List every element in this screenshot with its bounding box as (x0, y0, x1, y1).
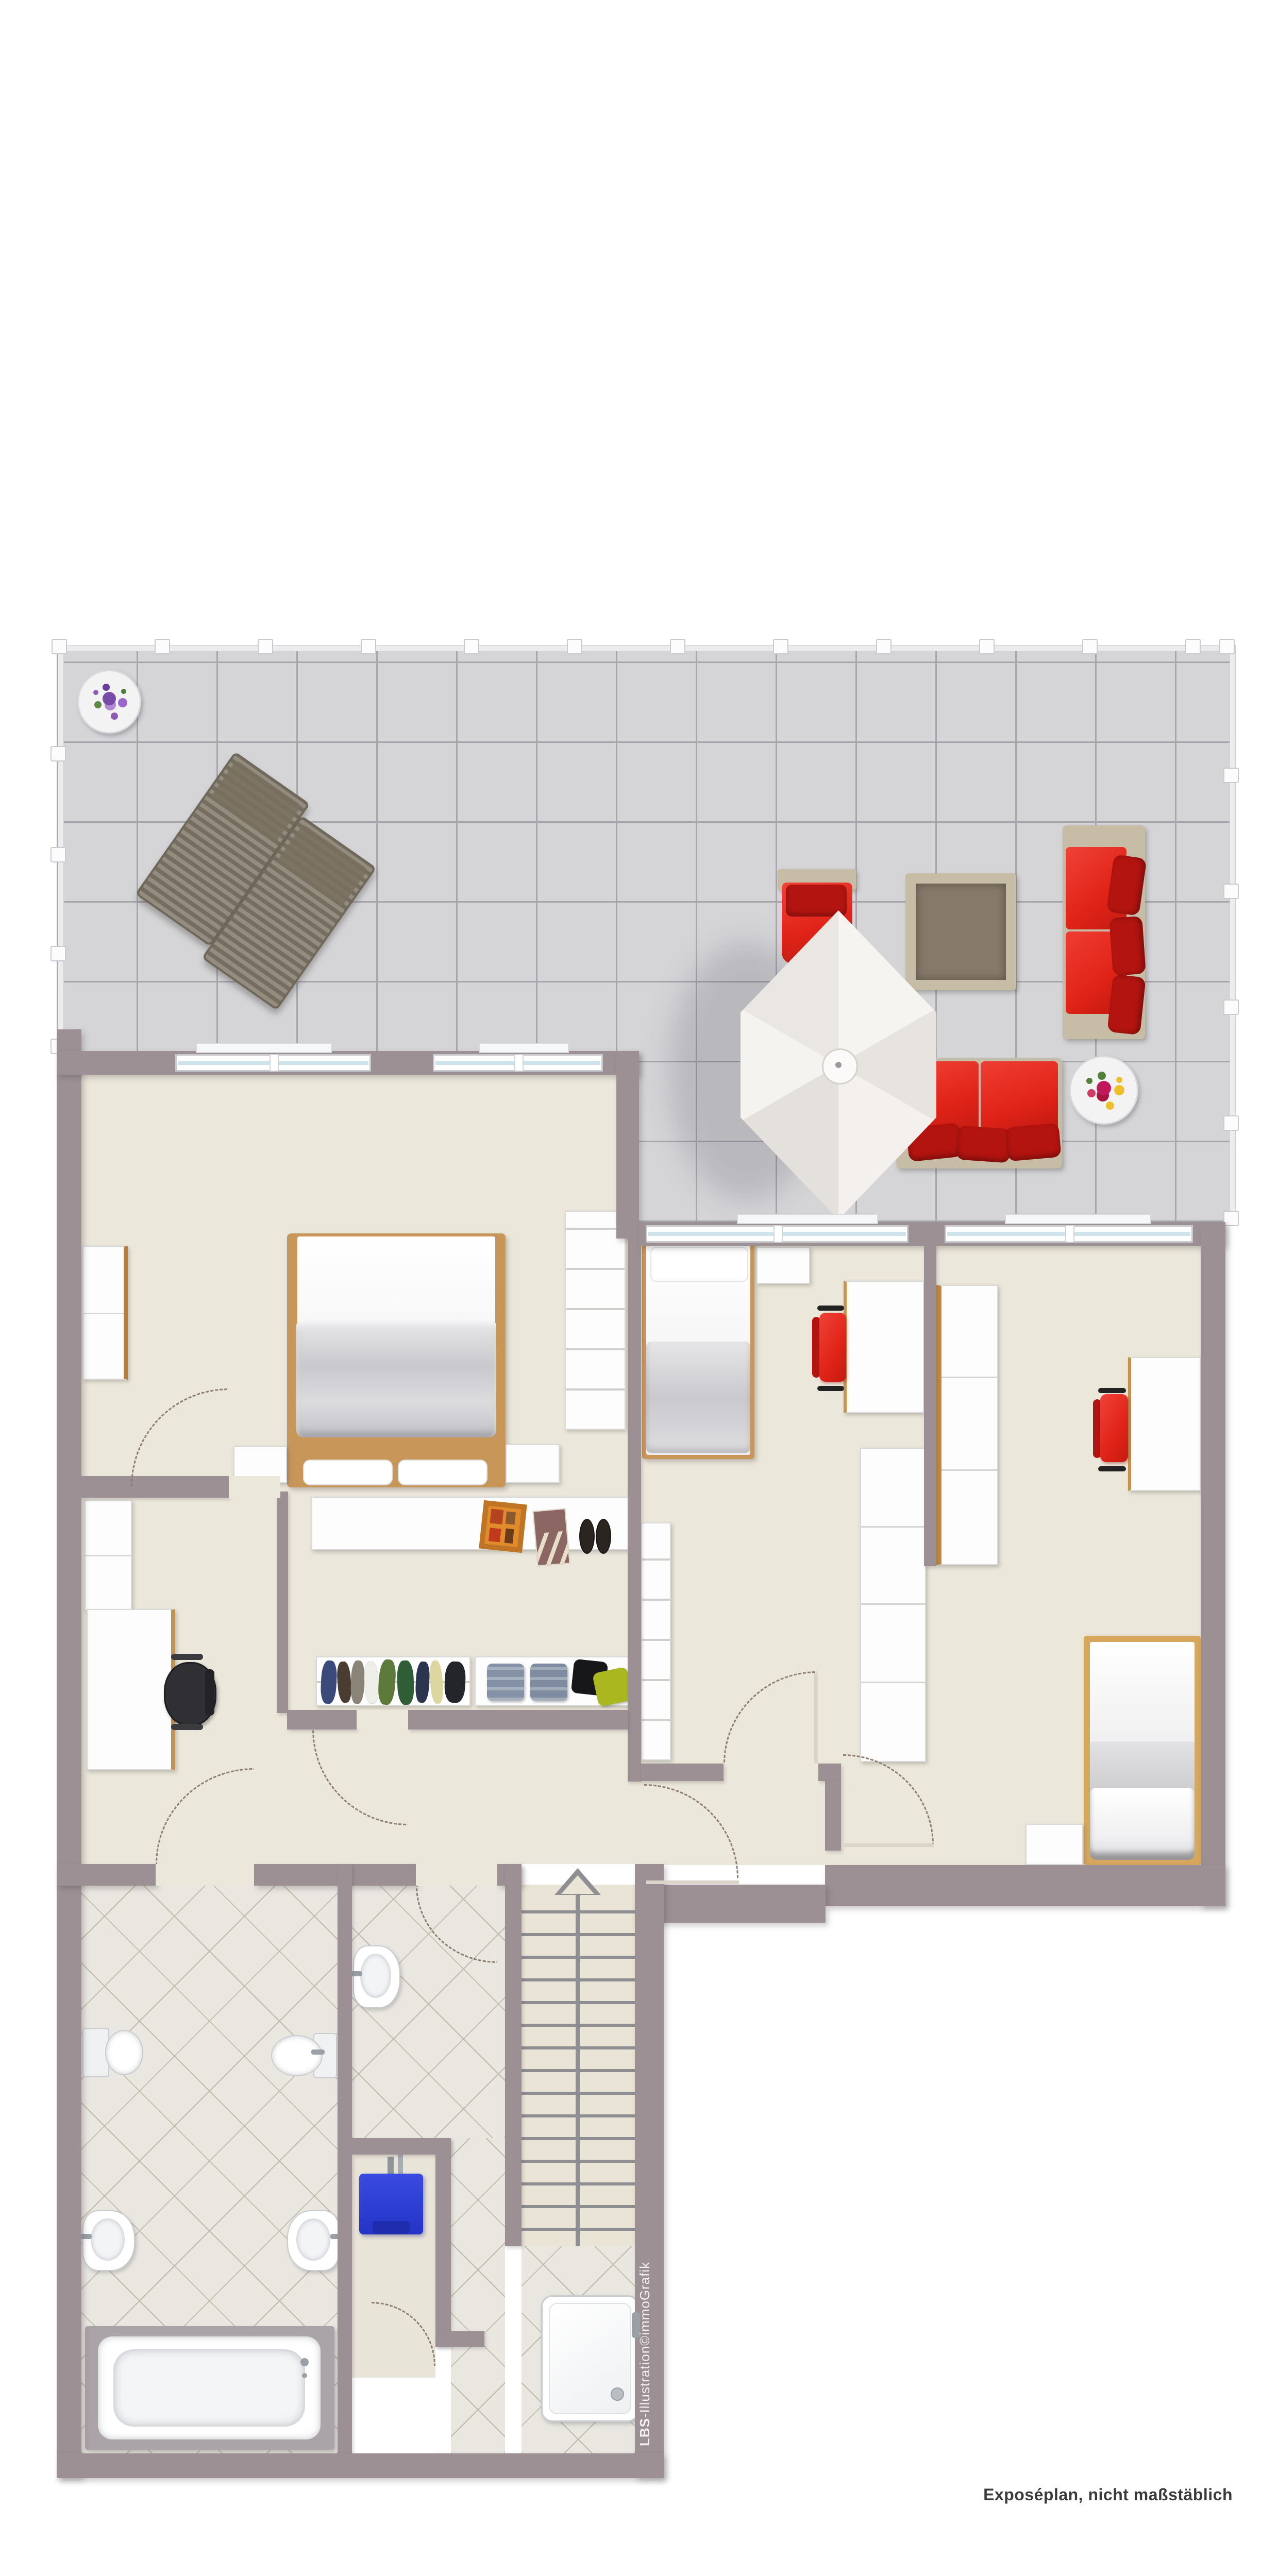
chair-armrest (817, 1386, 844, 1391)
wall-south-right (825, 1865, 1225, 1906)
wall-bath-north-a (57, 1864, 156, 1886)
door-opening-bathroom (156, 1864, 254, 1886)
sofa-back-pillow (1107, 974, 1146, 1035)
railing-post (51, 946, 66, 961)
clothes-shelf (475, 1656, 631, 1706)
wall-dressing-east (628, 1236, 641, 1782)
chair-backrest (205, 1669, 214, 1716)
railing-post (1185, 639, 1201, 654)
deco-square (506, 1512, 516, 1525)
chair-armrest (171, 1724, 203, 1730)
bookshelf (641, 1522, 671, 1760)
railing-post (1223, 1115, 1239, 1131)
wardrobe (936, 1285, 998, 1565)
desk-chair-red (1093, 1388, 1128, 1471)
single-bed (642, 1239, 754, 1459)
wall-shelf (756, 1247, 810, 1284)
window-sill (1005, 1214, 1151, 1224)
door-leaf (814, 1673, 818, 1764)
railing-post (876, 639, 892, 654)
wall-laundry-niche-stub (435, 2331, 484, 2347)
garden-sofa-3seat (1063, 825, 1145, 1039)
exterior-door-opening (357, 2378, 435, 2453)
deco-shoe (579, 1519, 595, 1554)
nightstand (1025, 1824, 1083, 1865)
railing-post (979, 639, 995, 654)
flower-pot (1069, 1056, 1138, 1125)
basin-faucet (351, 1971, 362, 1976)
basin-bowl (296, 2218, 330, 2261)
wall-exterior-right (1201, 1222, 1225, 1906)
railing-post (1219, 639, 1235, 654)
shower-tray (541, 2295, 639, 2422)
hanging-clothes (363, 1661, 380, 1704)
door-opening-bedroom (229, 1476, 280, 1498)
tall-wardrobe (565, 1211, 626, 1430)
railing-post (1223, 1211, 1239, 1226)
cabinet-seam (861, 1682, 925, 1683)
toilet (82, 2028, 141, 2075)
parasol-pole (835, 1062, 842, 1068)
railing-post (258, 639, 273, 654)
chair-armrest (1098, 1388, 1126, 1393)
deco-shoe (596, 1519, 611, 1554)
deco-square (490, 1509, 504, 1524)
wall-bedroom-east (616, 1051, 639, 1239)
railing-post (1223, 768, 1239, 783)
washbasin (287, 2210, 340, 2271)
wc-corridor-floor (451, 2138, 505, 2453)
deco-square (489, 1528, 501, 1542)
bed-pillow (398, 1460, 487, 1485)
flower-blossoms (103, 692, 116, 705)
flower-pot (77, 670, 141, 734)
desk (1128, 1357, 1201, 1491)
hanging-clothes (415, 1661, 430, 1703)
washbasin (82, 2210, 135, 2271)
wall-bedroom-south (81, 1476, 229, 1498)
wardrobe-seam (83, 1313, 124, 1314)
machine-front (373, 2221, 410, 2234)
railing-post (670, 639, 685, 654)
chair-armrest (171, 1654, 203, 1660)
railing-post (361, 639, 376, 654)
wall-laundry-niche-right (435, 2138, 451, 2347)
wall-exterior-south (57, 2453, 664, 2478)
stair-direction-arrow-inner (561, 1875, 594, 1894)
bed-pillow (303, 1460, 393, 1485)
hanging-clothes (429, 1660, 444, 1704)
clothes-rail (316, 1656, 470, 1706)
window (433, 1054, 603, 1072)
cabinet-seam (861, 1526, 925, 1528)
railing-post (773, 639, 788, 654)
sofa-seat (981, 1061, 1058, 1133)
shower-drain (611, 2387, 624, 2401)
watermark-lbs: LBS (637, 2418, 652, 2446)
wall-dressing-south-b (408, 1710, 628, 1730)
bidet-bowl (271, 2035, 323, 2076)
door-leaf (646, 1880, 739, 1884)
window-sill (479, 1043, 569, 1053)
window (646, 1225, 909, 1243)
bed-duvet (296, 1319, 496, 1437)
window-sill (737, 1214, 878, 1224)
watermark-rest: -Illustration©immoGrafik (637, 2262, 652, 2418)
toilet-bowl (105, 2030, 143, 2075)
railing-post (52, 639, 67, 654)
bathtub (85, 2326, 334, 2450)
chair-seat (819, 1313, 846, 1382)
railing-post (464, 639, 479, 654)
railing-post (1082, 639, 1098, 654)
hanging-clothes (444, 1661, 466, 1703)
door-opening-dressing (357, 1710, 408, 1730)
wall-exterior-left (57, 1029, 81, 2478)
wall-midroom-south-b (818, 1764, 841, 1781)
window-sill (196, 1043, 332, 1053)
wall-dressing-west (277, 1492, 288, 1713)
sofa-back-pillow (956, 1125, 1012, 1163)
coffee-table (905, 873, 1016, 990)
door-opening-wc (416, 1864, 497, 1886)
bidet (271, 2032, 337, 2077)
door-leaf (844, 1843, 934, 1847)
window (175, 1054, 371, 1072)
washing-machine (359, 2174, 423, 2234)
wc-floor (352, 1885, 505, 2138)
bed-pillow (650, 1247, 748, 1282)
desk-chair-red (812, 1306, 846, 1391)
sofa-back-pillow (1109, 916, 1146, 976)
tub-inner (113, 2349, 305, 2427)
disclaimer-text: Exposéplan, nicht maßstäblich (983, 2485, 1233, 2504)
bedside-bench (506, 1444, 560, 1483)
wall-midroom-south-a (641, 1764, 724, 1781)
wardrobe (82, 1246, 128, 1380)
shelf-seam (86, 1555, 131, 1556)
window (945, 1225, 1193, 1243)
hanging-clothes (350, 1660, 365, 1704)
office-chair (160, 1649, 216, 1735)
wall-dressing-south-a (287, 1710, 357, 1730)
hanging-clothes (397, 1660, 415, 1705)
terrace-railing-right (1230, 645, 1236, 1224)
single-bed (1084, 1636, 1201, 1865)
stair-stringer (576, 1890, 580, 2246)
basin-bowl (91, 2218, 125, 2261)
folded-jeans (530, 1664, 567, 1701)
wardrobe-seam (941, 1377, 997, 1378)
railing-post (1223, 884, 1239, 899)
railing-post (51, 847, 66, 862)
cabinet-seam (861, 1603, 925, 1605)
wall-rightroom-west (825, 1781, 841, 1851)
railing-post (51, 746, 66, 761)
hanging-clothes (377, 1659, 397, 1705)
tub-faucet (300, 2358, 309, 2366)
floor-plan-page: LBS-Illustration©immoGrafik Exposéplan, … (0, 0, 1278, 2576)
bed-duvet (646, 1342, 750, 1453)
deco-book (532, 1508, 570, 1566)
railing-post (567, 639, 582, 654)
tall-cabinet (860, 1448, 926, 1762)
watermark-credit: LBS-Illustration©immoGrafik (637, 2262, 653, 2446)
sofa-back-pillow (1005, 1123, 1061, 1162)
hall-shelf (85, 1500, 132, 1611)
wall-bath-wc-divider (338, 1864, 352, 2453)
bed-duvet (1090, 1788, 1195, 1860)
folded-jeans (487, 1664, 524, 1701)
washbasin (353, 1945, 400, 2008)
hanging-clothes (336, 1661, 352, 1703)
basin-bowl (360, 1954, 391, 1998)
bidet-faucet (311, 2049, 325, 2055)
railing-post (155, 639, 170, 654)
wardrobe-seam (941, 1469, 997, 1471)
wall-wc-north-a (352, 1864, 416, 1886)
desk (844, 1281, 924, 1413)
wall-wc-stairs-divider (505, 1864, 522, 2246)
basin-faucet (80, 2234, 92, 2239)
chair-armrest (1098, 1466, 1126, 1471)
wall-room-divider (924, 1245, 936, 1566)
deco-square (505, 1529, 514, 1544)
table-top (916, 884, 1006, 980)
railing-post (1223, 999, 1239, 1015)
hall-passage-floor (628, 1780, 641, 1864)
terrace-railing-top (57, 645, 1234, 651)
chair-seat (1100, 1394, 1128, 1462)
double-bed (287, 1233, 506, 1487)
hanging-clothes (320, 1660, 338, 1704)
deco-shadow-box (479, 1500, 527, 1553)
flower-blossoms (1097, 1081, 1111, 1095)
chair-armrest (817, 1306, 844, 1311)
